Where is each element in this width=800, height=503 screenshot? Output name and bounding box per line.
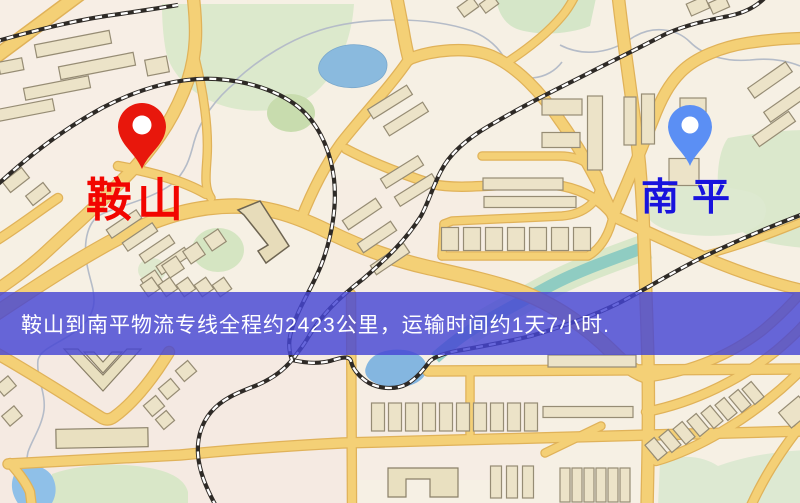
info-banner: 鞍山到南平物流专线全程约2423公里，运输时间约1天7小时. (0, 292, 800, 355)
origin-label: 鞍山 (86, 177, 188, 223)
map-canvas (0, 0, 800, 503)
destination-label: 南平 (641, 179, 743, 217)
info-banner-text: 鞍山到南平物流专线全程约2423公里，运输时间约1天7小时. (21, 309, 610, 339)
map-container: 鞍山 南平 鞍山到南平物流专线全程约2423公里，运输时间约1天7小时. (0, 0, 800, 503)
